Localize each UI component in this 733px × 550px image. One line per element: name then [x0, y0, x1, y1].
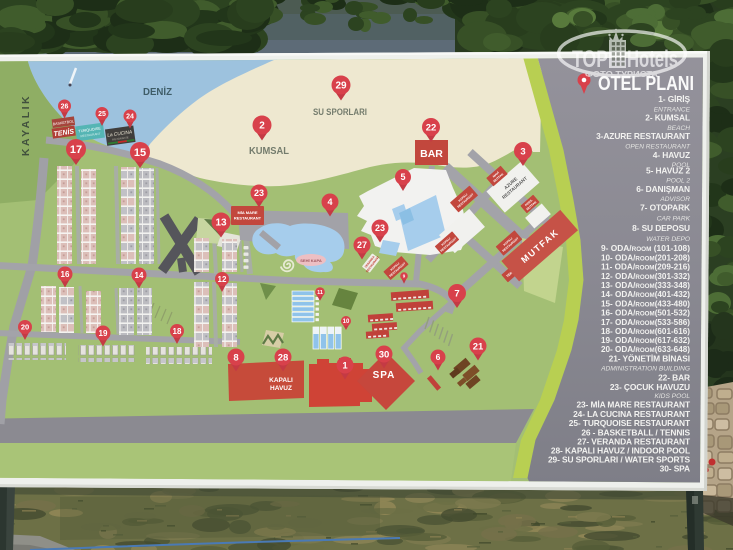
- svg-text:MİA MARE: MİA MARE: [237, 210, 257, 215]
- svg-text:8- SU DEPOSU: 8- SU DEPOSU: [632, 223, 690, 233]
- svg-text:13: 13: [215, 218, 227, 229]
- svg-text:21- YÖNETİM BİNASI: 21- YÖNETİM BİNASI: [609, 354, 690, 364]
- svg-text:1: 1: [342, 360, 348, 371]
- svg-text:26: 26: [61, 104, 69, 111]
- svg-text:22: 22: [426, 122, 437, 133]
- svg-text:RESTAURANT: RESTAURANT: [234, 216, 262, 221]
- svg-text:5: 5: [400, 172, 405, 182]
- svg-text:10: 10: [343, 319, 350, 325]
- svg-text:4- HAVUZ: 4- HAVUZ: [653, 150, 690, 160]
- svg-text:SPA: SPA: [373, 370, 396, 381]
- svg-text:SEHİ KAPA: SEHİ KAPA: [300, 258, 322, 263]
- svg-text:14: 14: [135, 271, 144, 280]
- svg-text:2: 2: [259, 121, 265, 132]
- svg-text:11: 11: [317, 290, 323, 296]
- svg-text:23: 23: [254, 188, 264, 198]
- svg-text:5- HAVUZ 2: 5- HAVUZ 2: [646, 166, 690, 176]
- svg-text:6- DANIŞMAN: 6- DANIŞMAN: [636, 184, 690, 194]
- svg-text:HAVUZ: HAVUZ: [270, 385, 292, 392]
- svg-text:17: 17: [70, 144, 82, 156]
- svg-text:TOP: TOP: [572, 46, 608, 73]
- svg-text:4: 4: [327, 197, 332, 207]
- svg-text:CAR PARK: CAR PARK: [657, 216, 691, 223]
- svg-text:KUMSAL: KUMSAL: [249, 145, 290, 157]
- svg-text:15: 15: [134, 147, 146, 159]
- svg-text:SU SPORLARI: SU SPORLARI: [313, 107, 367, 117]
- svg-text:18: 18: [173, 327, 182, 336]
- svg-text:20: 20: [21, 323, 29, 332]
- svg-text:25- TURQUOISE RESTAURANT: 25- TURQUOISE RESTAURANT: [569, 418, 691, 428]
- svg-text:WATER DEPO: WATER DEPO: [646, 236, 690, 243]
- svg-text:KAPALI: KAPALI: [269, 377, 293, 384]
- svg-text:1- GİRİŞ: 1- GİRİŞ: [658, 94, 690, 104]
- svg-text:22- BAR: 22- BAR: [658, 373, 690, 383]
- svg-text:KAYALIK: KAYALIK: [20, 94, 32, 156]
- svg-text:19: 19: [99, 329, 108, 338]
- svg-text:30- SPA: 30- SPA: [660, 464, 690, 474]
- svg-text:28: 28: [278, 352, 289, 363]
- svg-text:7- OTOPARK: 7- OTOPARK: [640, 203, 690, 213]
- svg-text:BAR: BAR: [420, 148, 443, 160]
- svg-text:8: 8: [233, 352, 238, 363]
- svg-text:ADMINISTRATION BUILDING: ADMINISTRATION BUILDING: [600, 366, 690, 373]
- svg-text:30: 30: [379, 349, 390, 360]
- svg-text:2- KUMSAL: 2- KUMSAL: [645, 113, 690, 123]
- svg-text:29: 29: [335, 81, 347, 92]
- svg-text:7: 7: [454, 288, 459, 299]
- svg-text:27: 27: [357, 240, 367, 250]
- svg-text:3-AZURE RESTAURANT: 3-AZURE RESTAURANT: [596, 131, 691, 141]
- svg-text:Hotels: Hotels: [627, 46, 678, 73]
- svg-text:ФОТО ТУРИСТА: ФОТО ТУРИСТА: [585, 70, 658, 79]
- svg-text:21: 21: [473, 341, 484, 352]
- svg-text:16: 16: [61, 270, 70, 279]
- svg-text:DENİZ: DENİZ: [143, 85, 173, 98]
- svg-text:12: 12: [218, 275, 227, 284]
- svg-text:25: 25: [98, 111, 106, 118]
- svg-text:23- ÇOCUK HAVUZU: 23- ÇOCUK HAVUZU: [610, 382, 690, 392]
- svg-text:24: 24: [126, 114, 134, 121]
- svg-text:3: 3: [520, 146, 525, 157]
- svg-text:6: 6: [436, 352, 441, 362]
- svg-text:23: 23: [375, 223, 385, 233]
